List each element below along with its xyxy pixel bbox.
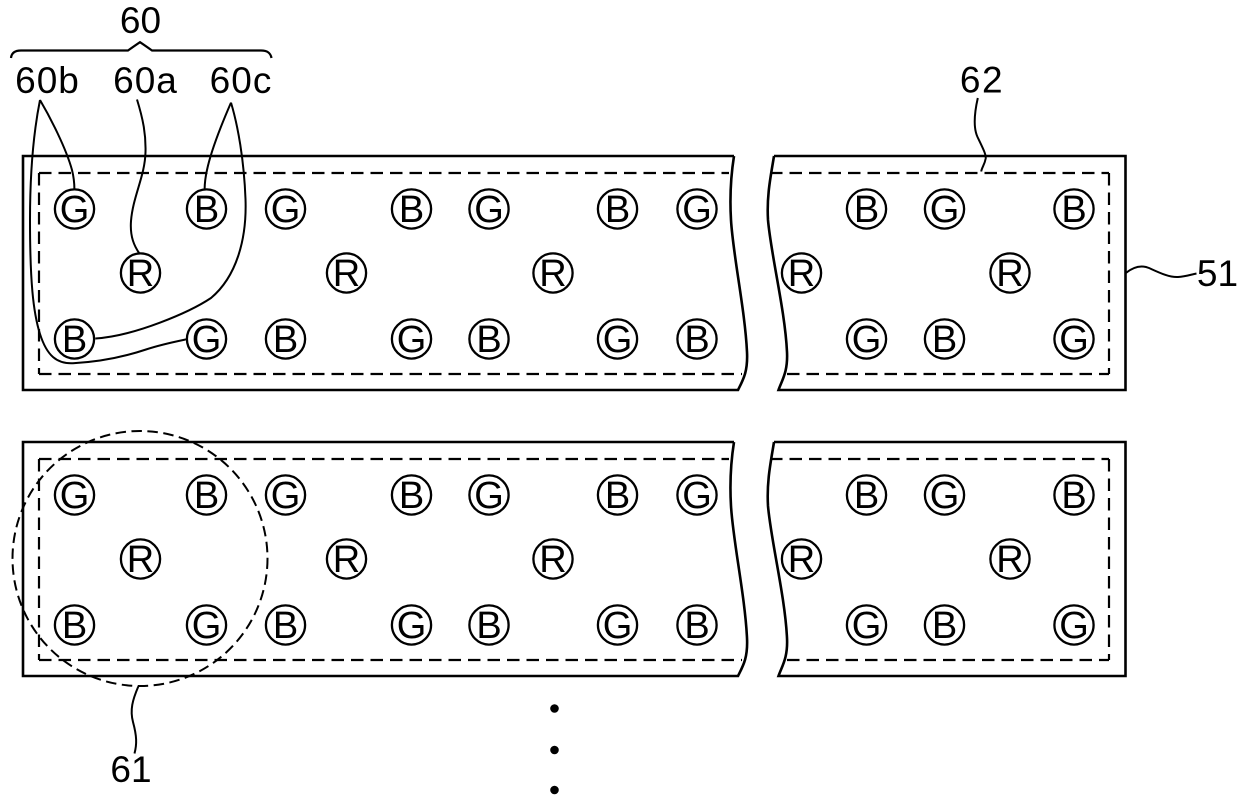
svg-text:B: B [194,189,219,231]
svg-text:60: 60 [120,0,161,41]
svg-text:G: G [474,189,504,231]
svg-text:R: R [333,539,360,581]
svg-text:R: R [788,539,815,581]
svg-text:G: G [603,319,633,361]
svg-text:G: G [271,475,301,517]
svg-text:G: G [930,189,960,231]
svg-text:G: G [603,605,633,647]
svg-text:R: R [333,253,360,295]
svg-text:62: 62 [960,60,1004,101]
svg-text:B: B [684,605,709,647]
svg-text:51: 51 [1197,253,1238,294]
svg-text:G: G [397,605,427,647]
svg-text:60a: 60a [113,60,178,101]
svg-text:G: G [1059,319,1089,361]
svg-text:R: R [788,253,815,295]
svg-text:G: G [852,319,882,361]
svg-text:B: B [932,319,957,361]
svg-text:G: G [271,189,301,231]
svg-text:G: G [930,475,960,517]
svg-text:B: B [273,319,298,361]
svg-text:B: B [399,475,424,517]
svg-text:R: R [539,539,566,581]
svg-text:61: 61 [110,749,151,790]
svg-text:B: B [194,475,219,517]
svg-text:B: B [605,475,630,517]
svg-text:B: B [476,319,501,361]
svg-text:R: R [127,539,154,581]
svg-text:R: R [996,253,1023,295]
svg-text:60b: 60b [15,60,80,101]
svg-text:G: G [474,475,504,517]
svg-text:B: B [476,605,501,647]
svg-text:B: B [1061,189,1086,231]
svg-text:B: B [62,605,87,647]
svg-text:R: R [539,253,566,295]
svg-text:R: R [127,253,154,295]
svg-text:B: B [605,189,630,231]
svg-text:G: G [60,189,90,231]
svg-text:B: B [62,319,87,361]
svg-text:R: R [996,539,1023,581]
svg-text:G: G [682,189,712,231]
svg-text:B: B [854,475,879,517]
svg-text:B: B [854,189,879,231]
svg-text:60c: 60c [210,60,273,101]
svg-text:G: G [192,605,222,647]
svg-text:G: G [192,319,222,361]
svg-text:B: B [932,605,957,647]
svg-text:B: B [1061,475,1086,517]
svg-text:B: B [684,319,709,361]
svg-text:G: G [60,475,90,517]
svg-text:B: B [399,189,424,231]
svg-text:G: G [852,605,882,647]
svg-text:G: G [397,319,427,361]
svg-text:G: G [1059,605,1089,647]
svg-text:B: B [273,605,298,647]
svg-text:G: G [682,475,712,517]
